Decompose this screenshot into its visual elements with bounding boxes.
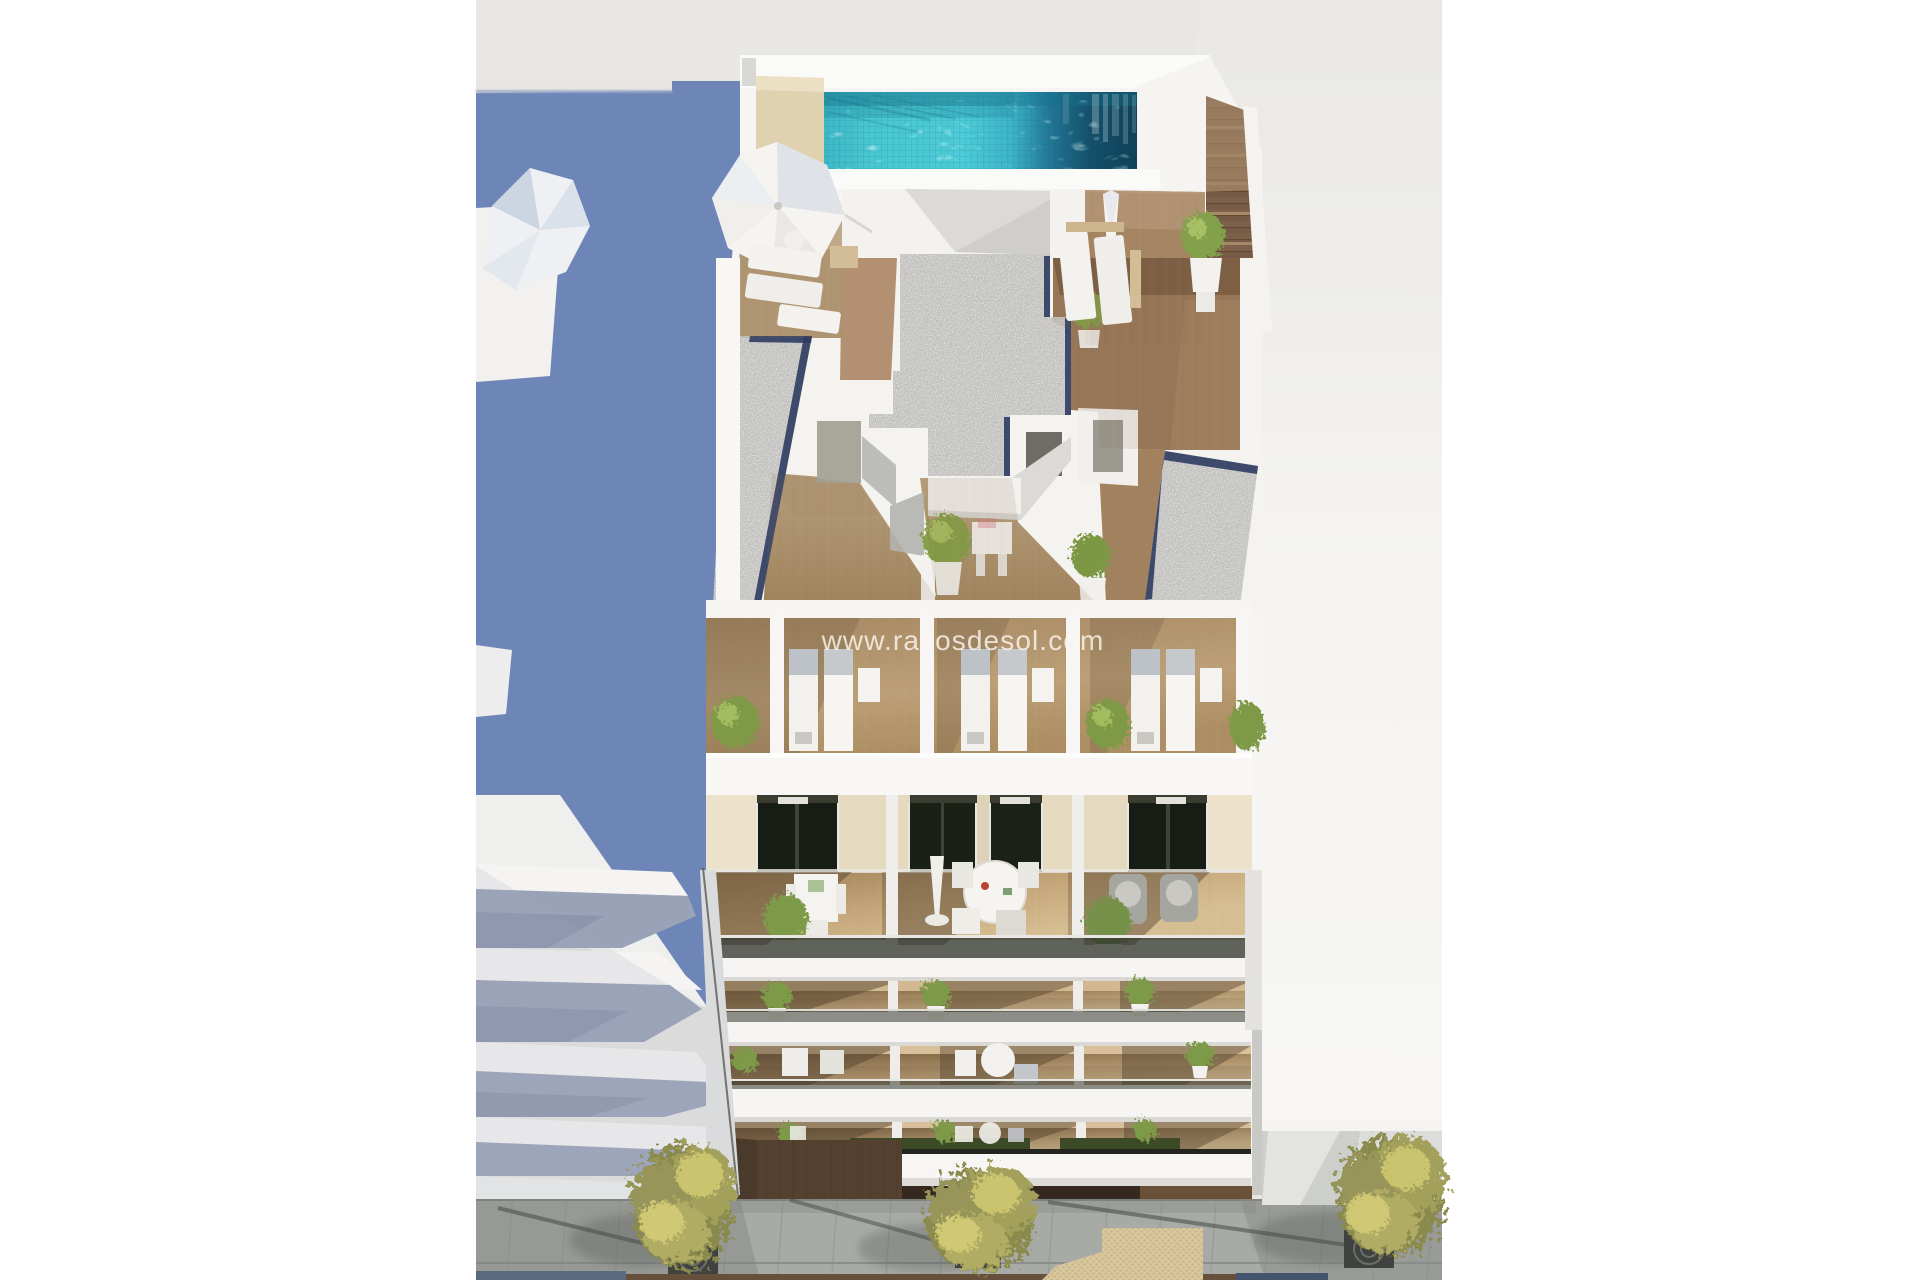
svg-text:www.rayosdesol.com: www.rayosdesol.com [821,625,1105,656]
